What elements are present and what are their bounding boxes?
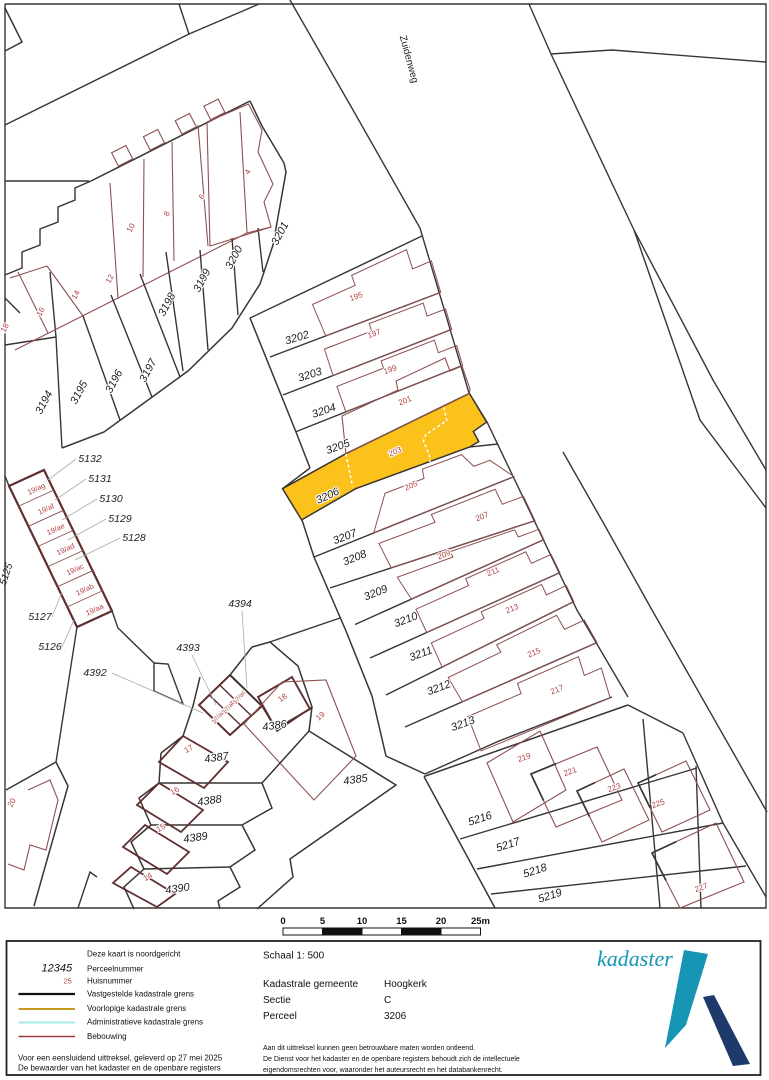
svg-text:Voorlopige kadastrale grens: Voorlopige kadastrale grens	[87, 1004, 186, 1013]
svg-text:4392: 4392	[83, 667, 107, 679]
svg-text:25: 25	[64, 977, 72, 986]
svg-text:De bewaarder van het kadaster: De bewaarder van het kadaster en de open…	[18, 1064, 221, 1073]
svg-text:25m: 25m	[471, 916, 490, 927]
svg-text:De Dienst voor het kadaster en: De Dienst voor het kadaster en de openba…	[263, 1056, 520, 1063]
svg-text:Sectie: Sectie	[263, 995, 291, 1006]
svg-text:eigendomsrechten voor, waarond: eigendomsrechten voor, waaronder het aut…	[263, 1067, 503, 1074]
svg-text:5: 5	[320, 916, 326, 927]
svg-text:0: 0	[280, 916, 285, 927]
svg-text:5129: 5129	[108, 513, 132, 525]
svg-text:C: C	[384, 995, 391, 1006]
svg-text:5132: 5132	[78, 453, 102, 465]
svg-text:5127: 5127	[28, 611, 53, 623]
svg-text:Vastgestelde kadastrale grens: Vastgestelde kadastrale grens	[87, 990, 194, 999]
svg-text:12345: 12345	[42, 963, 73, 975]
svg-text:Perceel: Perceel	[263, 1011, 297, 1022]
svg-text:Perceelnummer: Perceelnummer	[87, 965, 144, 974]
svg-text:Bebouwing: Bebouwing	[87, 1032, 127, 1041]
svg-text:Kadastrale gemeente: Kadastrale gemeente	[263, 979, 359, 990]
svg-text:10: 10	[357, 916, 368, 927]
svg-text:5128: 5128	[122, 532, 146, 544]
svg-text:Administratieve kadastrale gre: Administratieve kadastrale grens	[87, 1018, 203, 1027]
svg-text:20: 20	[436, 916, 447, 927]
svg-text:Huisnummer: Huisnummer	[87, 977, 133, 986]
svg-text:3206: 3206	[384, 1011, 407, 1022]
svg-text:5126: 5126	[38, 641, 62, 653]
svg-text:4393: 4393	[176, 642, 200, 654]
svg-text:15: 15	[396, 916, 407, 927]
svg-text:kadaster: kadaster	[597, 946, 673, 971]
svg-text:5131: 5131	[88, 473, 111, 485]
svg-text:Aan dit uittreksel kunnen geen: Aan dit uittreksel kunnen geen betrouwba…	[263, 1045, 475, 1052]
svg-text:Hoogkerk: Hoogkerk	[384, 979, 428, 990]
svg-text:4394: 4394	[228, 598, 252, 610]
svg-text:Deze kaart is noordgericht: Deze kaart is noordgericht	[87, 950, 181, 959]
svg-text:5130: 5130	[99, 493, 123, 505]
svg-text:Schaal 1: 500: Schaal 1: 500	[263, 951, 325, 962]
svg-text:Voor een eensluidend uittrekse: Voor een eensluidend uittreksel, gelever…	[18, 1054, 223, 1063]
